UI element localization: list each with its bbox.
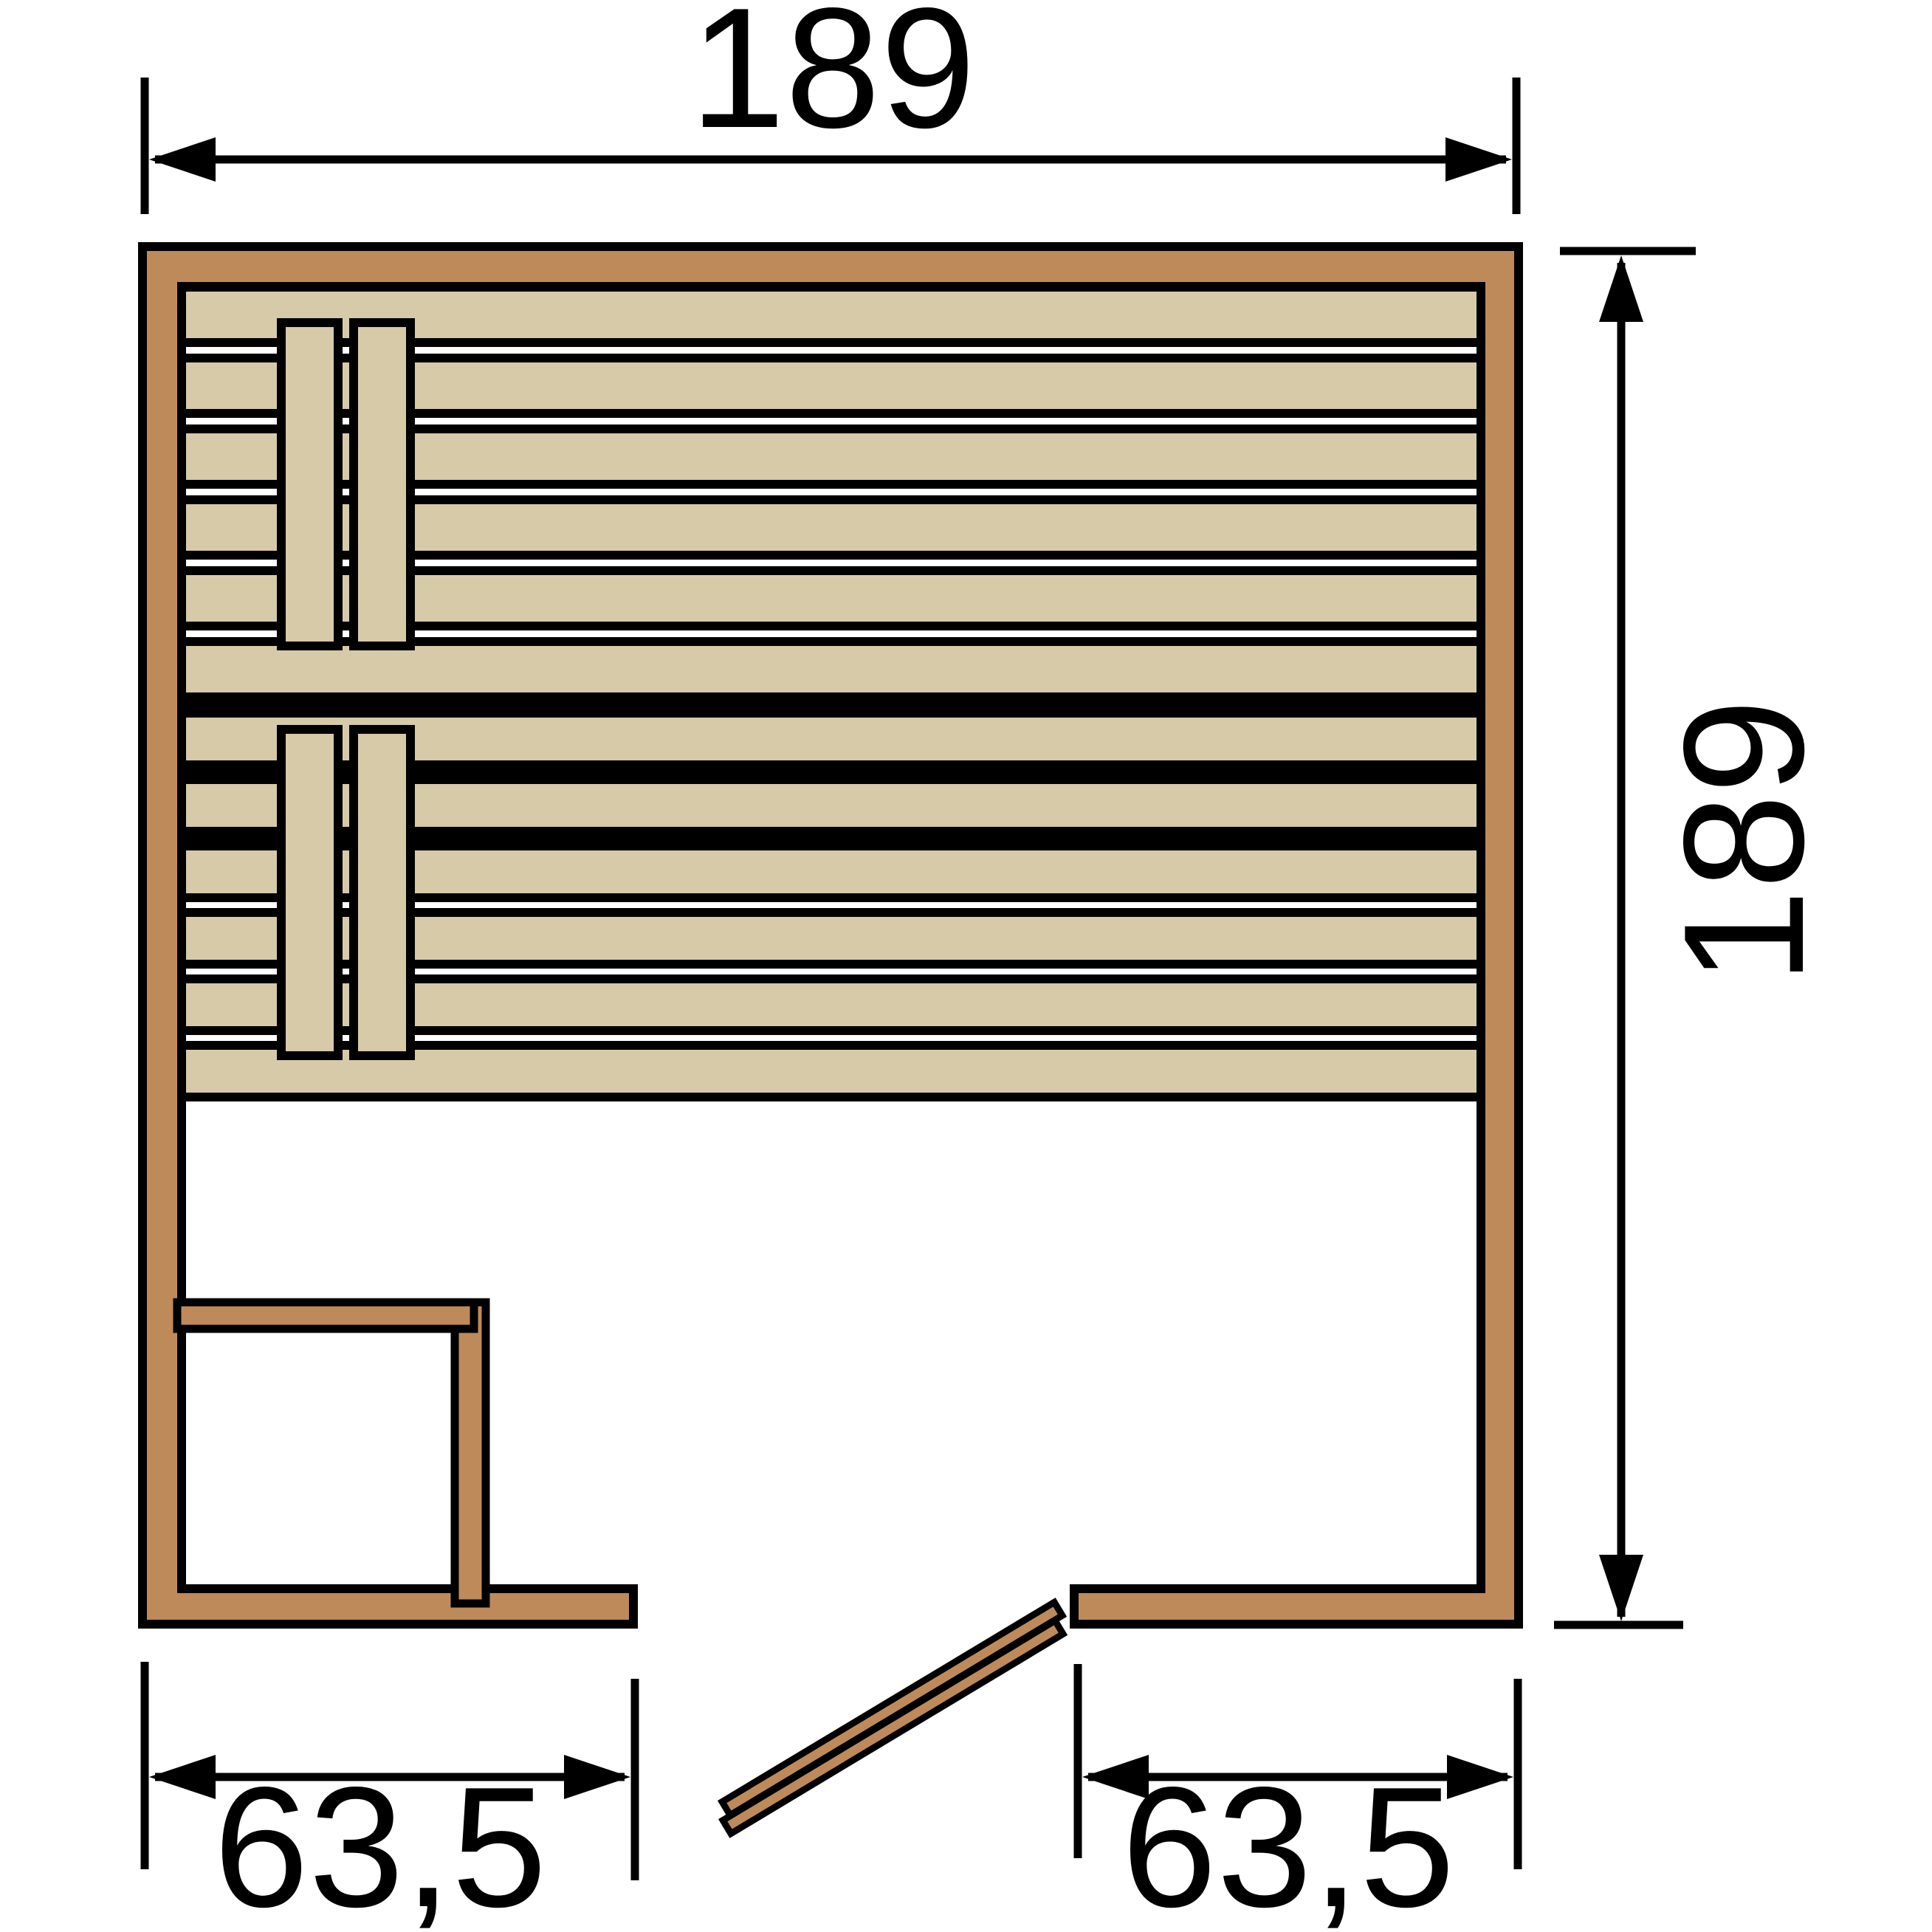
heater-partition: [177, 1302, 486, 1603]
door-leaf-inner-board: [723, 1620, 1063, 1833]
partition-vertical-board: [455, 1302, 486, 1603]
bottom-right-label: 63,5: [1121, 1752, 1455, 1932]
bench-support-plank: [281, 323, 338, 646]
arrowhead-right: [1445, 137, 1512, 182]
arrowhead-down: [1599, 1555, 1643, 1621]
door-leaf-outer-board: [722, 1602, 1062, 1815]
bottom-left-label: 63,5: [213, 1752, 547, 1932]
upper-bench: [182, 287, 1481, 697]
arrowhead-left: [149, 1755, 216, 1799]
arrowhead-right: [564, 1755, 630, 1799]
door-leaf: [715, 1602, 1070, 1833]
bench-support-plank: [354, 729, 410, 1056]
top-width-label: 189: [690, 0, 975, 164]
bench-support-plank: [281, 729, 338, 1056]
arrowhead-right: [1447, 1755, 1513, 1799]
sauna-floorplan: 189 189 63,5 63,5: [0, 0, 1932, 1932]
partition-horizontal-board: [177, 1302, 474, 1329]
arrowhead-left: [149, 137, 216, 182]
arrowhead-up: [1599, 255, 1643, 322]
bench-support-plank: [354, 323, 410, 646]
right-height-label: 189: [1649, 698, 1840, 984]
